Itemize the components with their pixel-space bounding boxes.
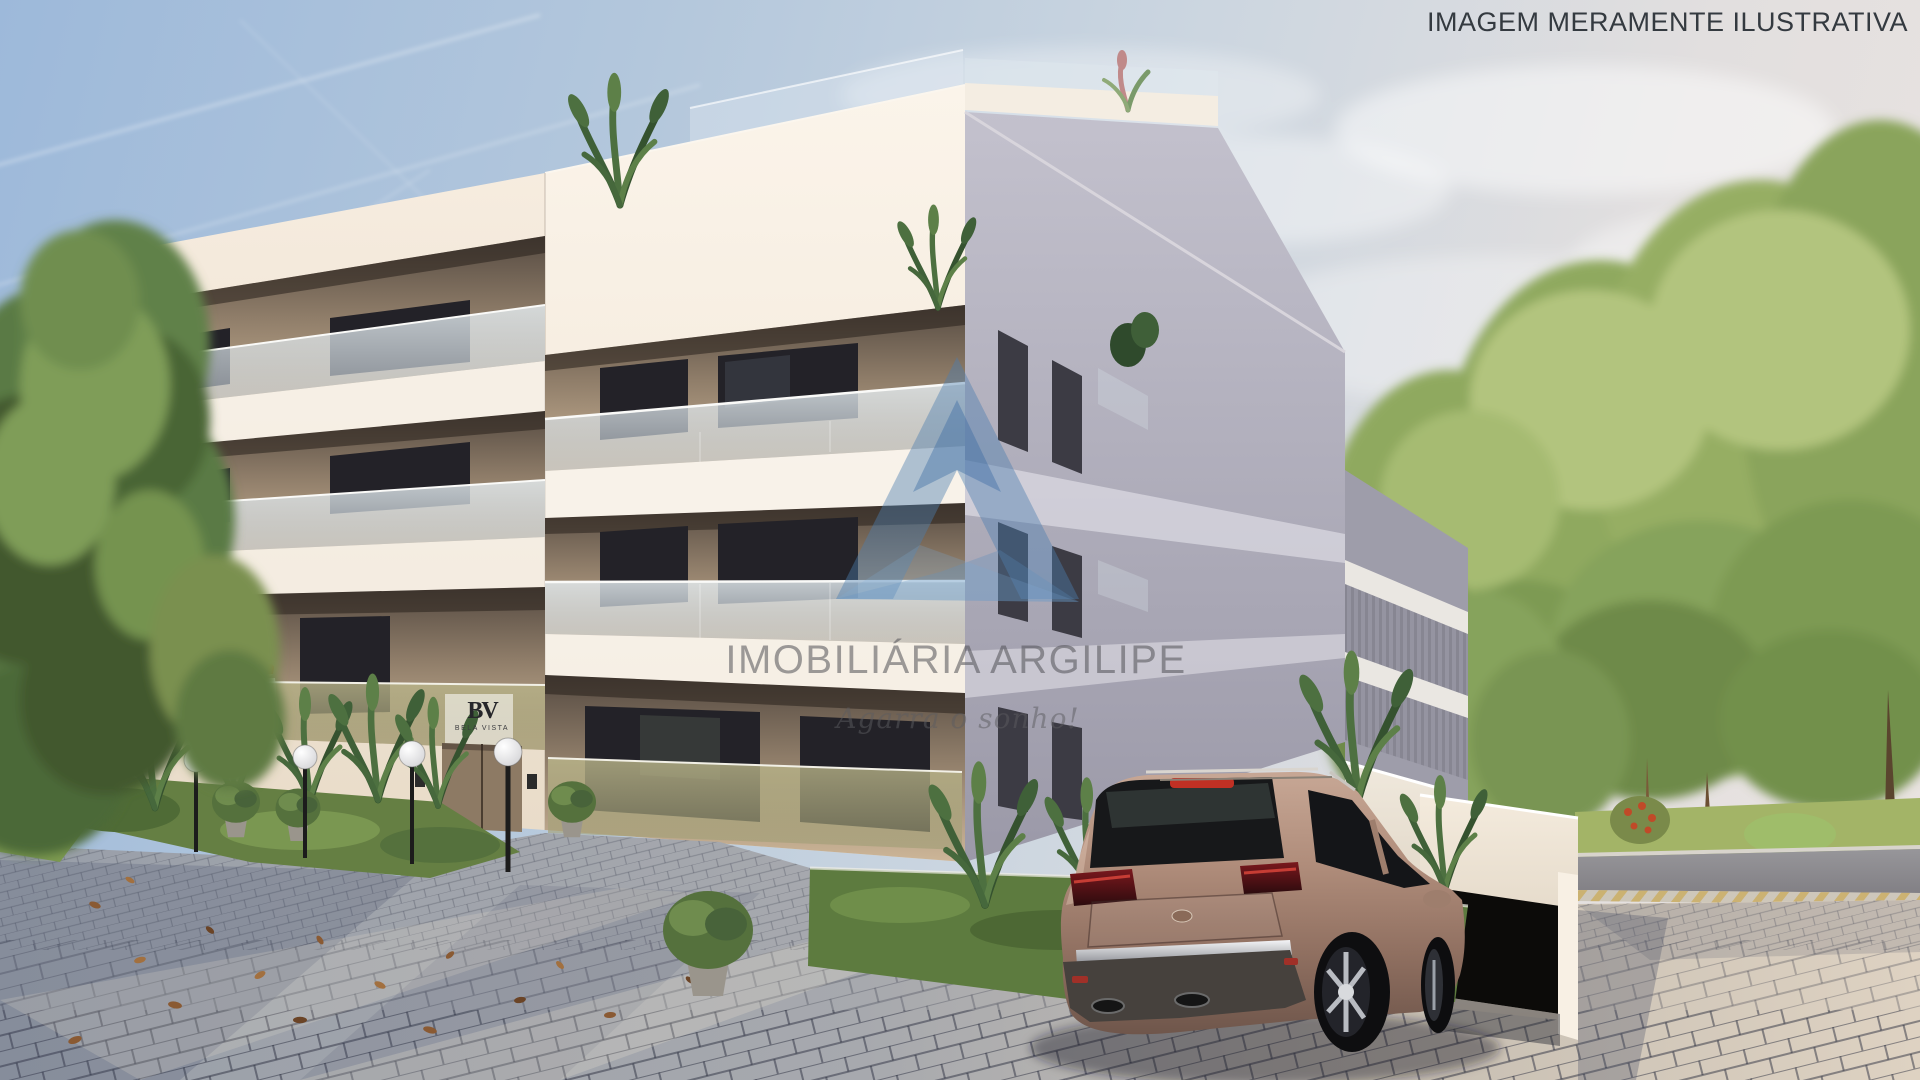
taillight-right	[1240, 862, 1302, 894]
front-wheel	[1421, 937, 1455, 1033]
rear-wheel	[1314, 932, 1390, 1052]
reflector	[1072, 976, 1088, 983]
entrance-sign-name: BELA VISTA	[447, 725, 517, 732]
side-mirror	[1423, 890, 1451, 908]
badge	[1172, 910, 1192, 922]
garage-pillar	[1558, 872, 1578, 1040]
entrance-sign: BV BELA VISTA	[447, 699, 517, 732]
exhaust	[1175, 993, 1209, 1007]
reflector	[1284, 958, 1298, 965]
entrance-sign-monogram: BV	[447, 699, 517, 723]
watermark-brand: IMOBILIÁRIA ARGILIPE	[725, 638, 1186, 683]
wall-sconce	[527, 774, 537, 789]
render-scene	[0, 0, 1920, 1080]
disclaimer-text: IMAGEM MERAMENTE ILUSTRATIVA	[1427, 7, 1908, 38]
exhaust	[1092, 999, 1124, 1013]
watermark-slogan: Agarra o sonho!	[836, 702, 1079, 735]
architectural-render: IMAGEM MERAMENTE ILUSTRATIVA IMOBILIÁRIA…	[0, 0, 1920, 1080]
